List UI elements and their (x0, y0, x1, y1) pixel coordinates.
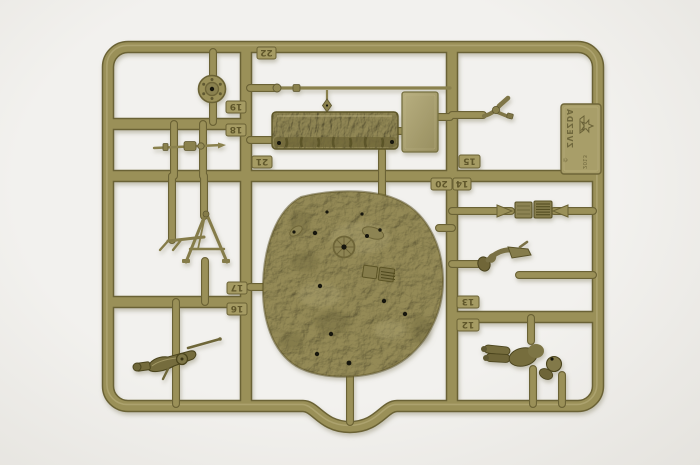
brand-tag: ZVEZDA 2013 © (561, 104, 601, 174)
log-hole-left (277, 141, 281, 145)
sprue-photo: 22 19 18 21 15 20 14 17 (0, 0, 700, 465)
part-number-tab-17: 17 (227, 282, 247, 294)
tab-number-19: 19 (230, 101, 243, 111)
bent-arm-part (476, 242, 531, 273)
sprue-drawing: 22 19 18 21 15 20 14 17 (0, 0, 700, 465)
part-number-tab-14: 14 (453, 178, 471, 190)
copyright-symbol: © (561, 157, 568, 163)
soldier-figure-part (481, 344, 562, 381)
tab-number-14: 14 (456, 178, 469, 188)
flat-panel-part (402, 92, 438, 152)
part-number-tab-16: 16 (227, 303, 247, 315)
tab-number-12: 12 (462, 319, 475, 329)
tab-number-15: 15 (463, 156, 476, 166)
gate-arrow-left (497, 205, 512, 217)
tab-number-17: 17 (231, 282, 244, 292)
part-number-tab-22: 22 (257, 47, 276, 59)
tab-number-18: 18 (230, 124, 243, 134)
gate-arrow-right (553, 205, 568, 217)
brand-year: 2013 (581, 155, 587, 169)
log-beam-part (272, 112, 398, 149)
cleaning-rod-part (154, 142, 226, 151)
engine-grille-part (515, 201, 552, 218)
tab-number-13: 13 (462, 296, 475, 306)
part-number-tab-19: 19 (226, 101, 246, 113)
sprue: 22 19 18 21 15 20 14 17 (107, 45, 601, 427)
terrain-base-part (263, 191, 443, 377)
part-number-tab-18: 18 (226, 124, 246, 136)
part-number-tab-15: 15 (459, 155, 480, 168)
tab-number-16: 16 (231, 303, 244, 313)
road-wheel-part (199, 76, 226, 103)
part-number-tab-12: 12 (457, 319, 479, 331)
log-hole-right (390, 140, 394, 144)
soldier-helmet (547, 357, 562, 372)
part-number-tab-21: 21 (252, 156, 272, 168)
periscope-fork-part (484, 98, 514, 119)
tab-number-22: 22 (260, 47, 273, 57)
part-number-tab-13: 13 (457, 296, 479, 308)
tab-number-21: 21 (256, 156, 269, 166)
wheel-hub-hole (210, 87, 214, 91)
tab-number-20: 20 (435, 178, 448, 188)
turret-ring-emboss (334, 237, 355, 258)
brand-name: ZVEZDA (565, 108, 574, 148)
part-number-tab-20: 20 (431, 178, 452, 190)
